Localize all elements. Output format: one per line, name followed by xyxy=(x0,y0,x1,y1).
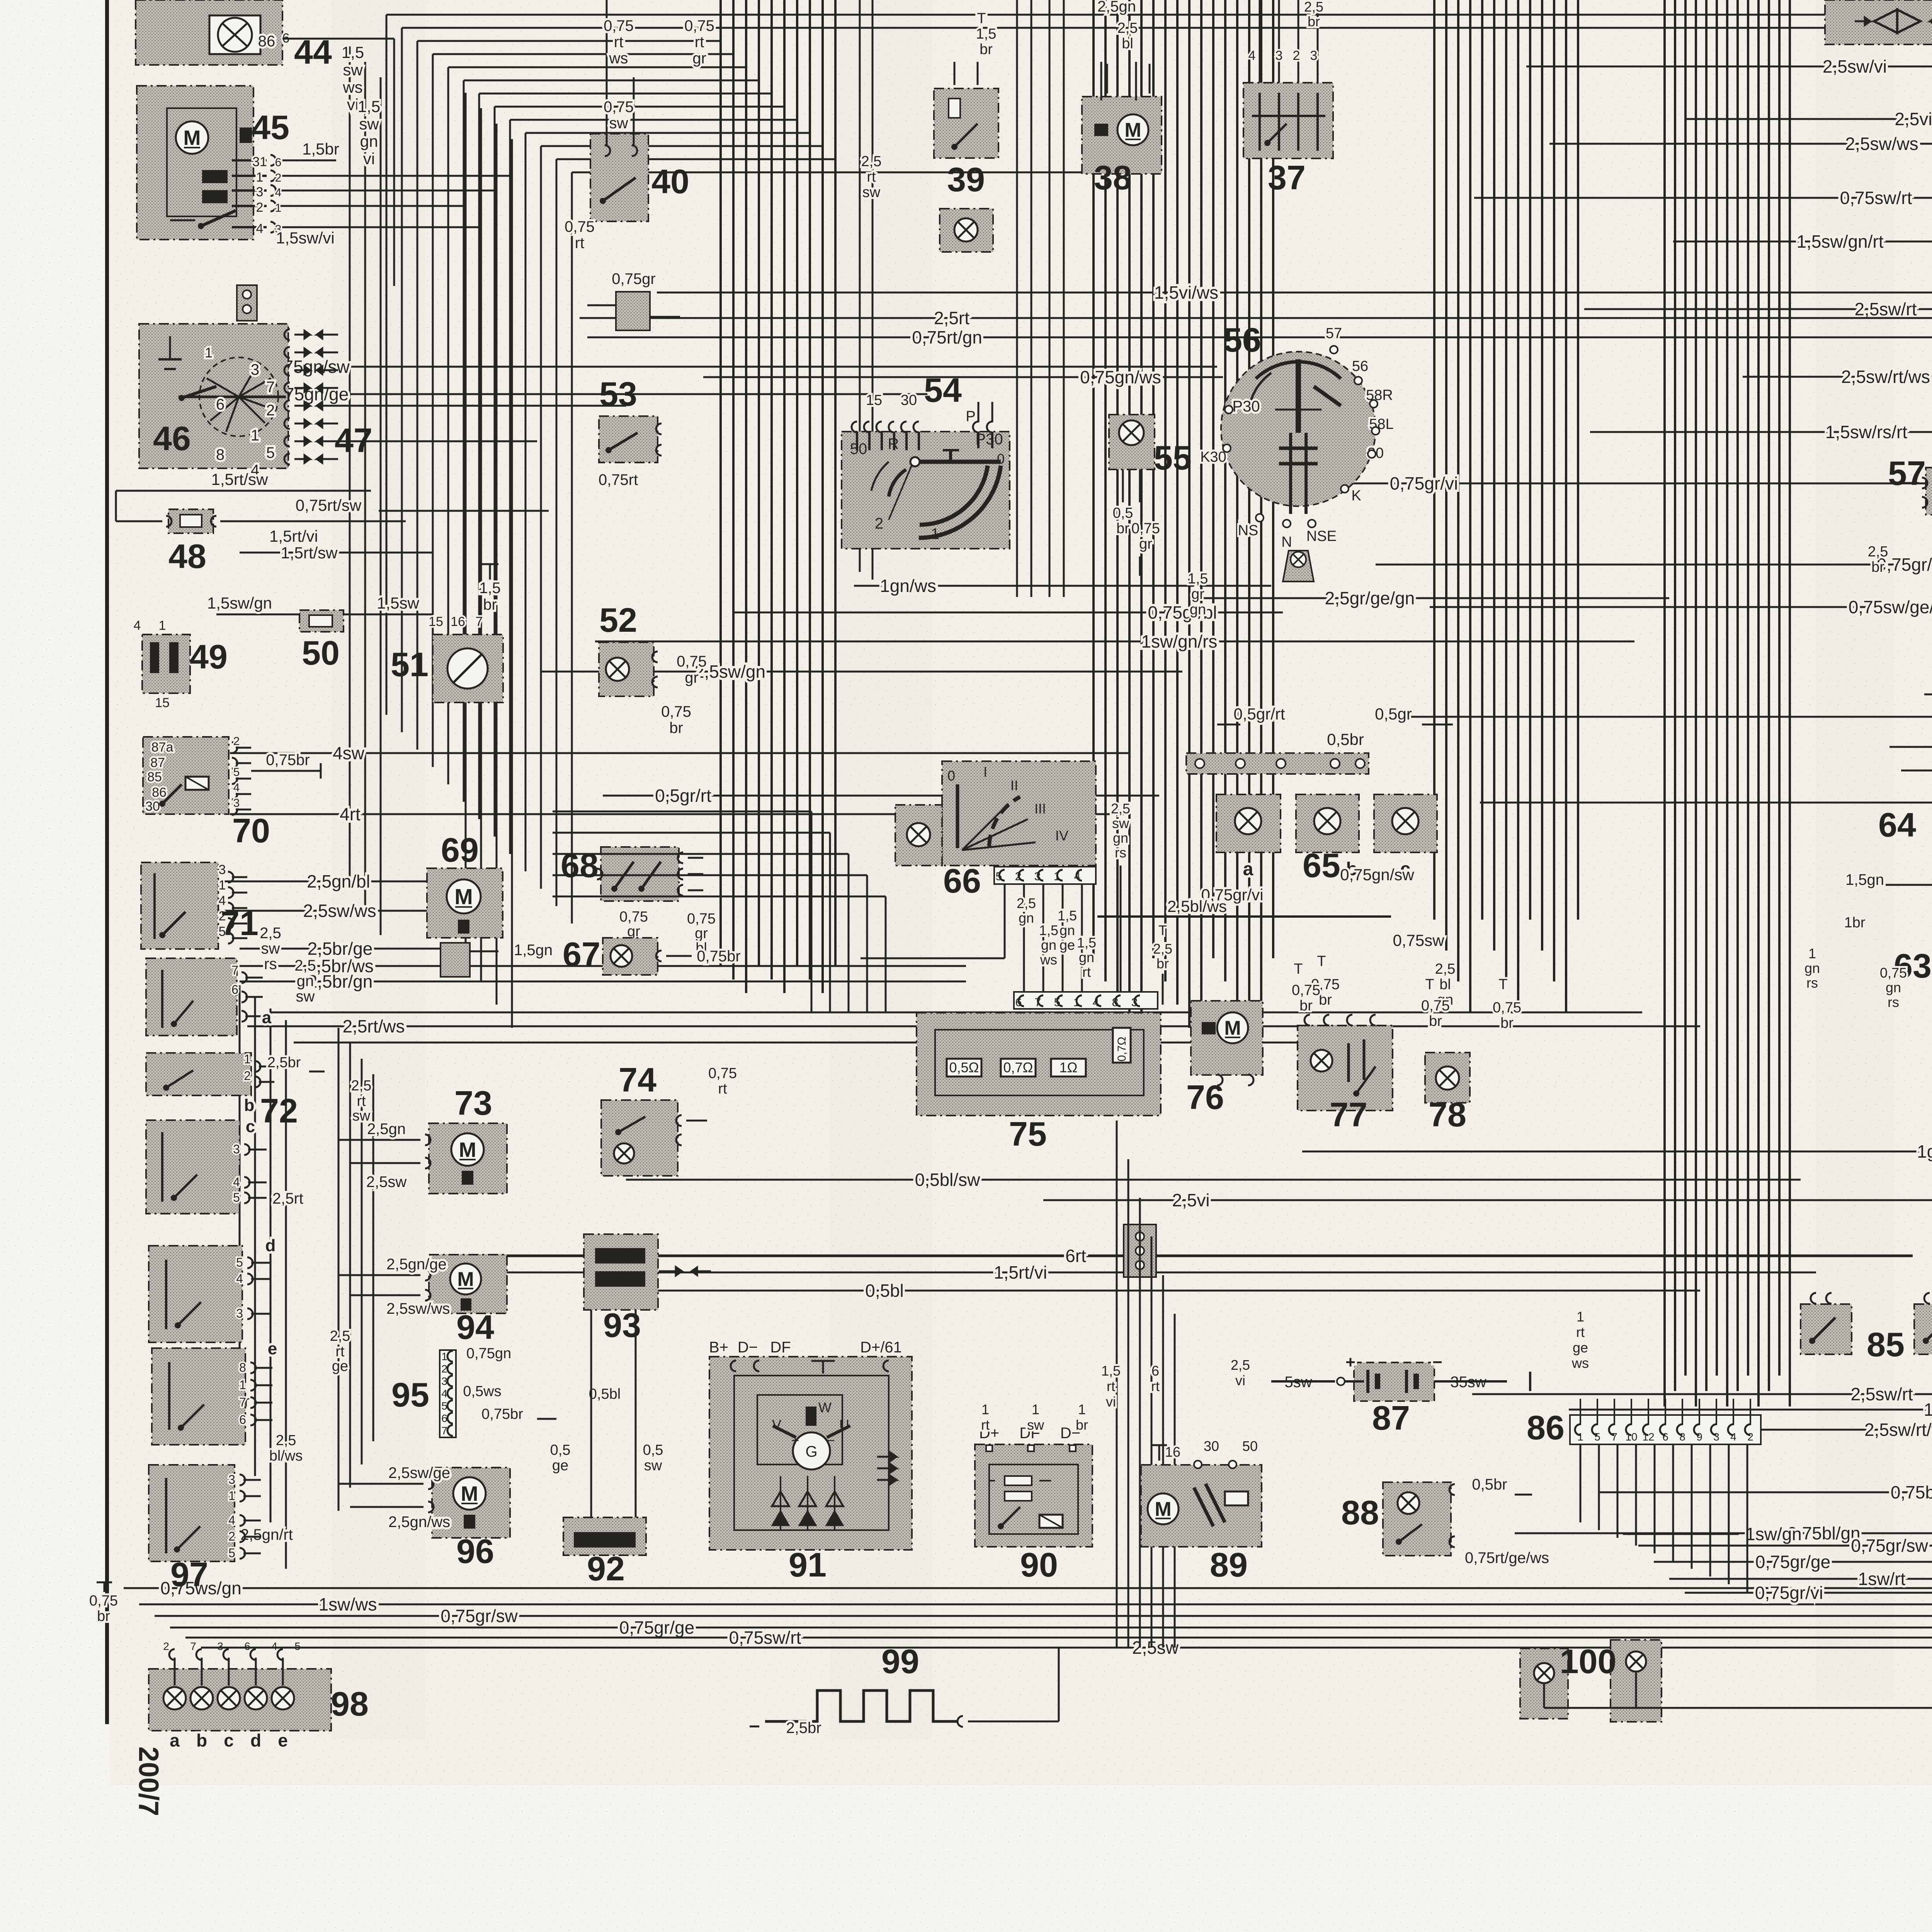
svg-text:1,5: 1,5 xyxy=(976,26,997,42)
svg-text:4: 4 xyxy=(134,618,141,633)
svg-text:gn: gn xyxy=(1041,937,1056,953)
svg-text:1,5: 1,5 xyxy=(1058,908,1077,923)
svg-text:0,75gr: 0,75gr xyxy=(612,270,655,287)
svg-text:15: 15 xyxy=(429,614,443,629)
svg-text:2,5sw/rt: 2,5sw/rt xyxy=(1850,1384,1913,1404)
svg-text:a: a xyxy=(170,1730,180,1750)
svg-text:3: 3 xyxy=(233,797,240,810)
svg-text:0,5: 0,5 xyxy=(643,1442,663,1458)
svg-text:br: br xyxy=(1500,1015,1514,1031)
svg-text:2: 2 xyxy=(228,1529,235,1543)
svg-text:gn: gn xyxy=(297,973,314,990)
svg-text:94: 94 xyxy=(456,1308,494,1346)
svg-text:0,75rt/gn: 0,75rt/gn xyxy=(912,327,982,347)
svg-text:vi: vi xyxy=(1235,1372,1245,1388)
svg-text:92: 92 xyxy=(587,1549,625,1588)
svg-text:7: 7 xyxy=(1611,1431,1617,1443)
svg-text:4: 4 xyxy=(271,1640,277,1652)
svg-text:2,5gn: 2,5gn xyxy=(1097,0,1136,15)
svg-text:a: a xyxy=(262,1008,272,1027)
svg-text:gn: gn xyxy=(360,132,378,150)
svg-text:3: 3 xyxy=(1131,996,1138,1009)
svg-text:e: e xyxy=(268,1339,277,1358)
svg-text:4: 4 xyxy=(233,781,240,794)
svg-text:vi: vi xyxy=(363,150,375,168)
svg-text:IV: IV xyxy=(1055,828,1068,844)
svg-text:rt: rt xyxy=(1082,964,1091,980)
svg-text:2: 2 xyxy=(1293,48,1300,63)
svg-text:7: 7 xyxy=(239,1395,246,1409)
svg-text:0,7Ω: 0,7Ω xyxy=(1003,1060,1033,1075)
svg-text:sw: sw xyxy=(644,1458,662,1474)
svg-text:4: 4 xyxy=(1248,48,1256,63)
svg-text:0,5: 0,5 xyxy=(550,1442,571,1458)
svg-text:0,75sw/rt: 0,75sw/rt xyxy=(729,1628,801,1648)
svg-text:100: 100 xyxy=(1560,1642,1617,1680)
svg-text:2: 2 xyxy=(256,200,264,215)
svg-text:rt: rt xyxy=(718,1081,727,1097)
svg-text:gr: gr xyxy=(685,669,699,686)
svg-text:40: 40 xyxy=(651,162,689,201)
svg-text:2,5: 2,5 xyxy=(1304,0,1323,15)
svg-text:30: 30 xyxy=(901,392,917,408)
svg-text:sw: sw xyxy=(352,1108,371,1124)
svg-text:2,5gn/bl: 2,5gn/bl xyxy=(307,871,370,891)
svg-text:gr: gr xyxy=(695,925,708,942)
svg-text:5: 5 xyxy=(294,1640,301,1652)
svg-text:31: 31 xyxy=(252,155,267,169)
svg-text:86: 86 xyxy=(258,33,276,50)
svg-text:rt: rt xyxy=(614,34,623,51)
svg-text:2: 2 xyxy=(244,1069,251,1083)
svg-text:rt: rt xyxy=(575,235,584,252)
svg-text:2,5: 2,5 xyxy=(260,925,281,942)
svg-text:rt: rt xyxy=(357,1093,366,1109)
svg-text:0,75: 0,75 xyxy=(565,218,595,235)
svg-text:br: br xyxy=(1308,14,1320,29)
svg-text:4sw: 4sw xyxy=(333,743,365,763)
svg-text:sw: sw xyxy=(1027,1417,1044,1433)
svg-text:74: 74 xyxy=(619,1061,656,1099)
svg-text:br: br xyxy=(1319,992,1332,1008)
svg-text:12: 12 xyxy=(1642,1431,1654,1443)
svg-text:85: 85 xyxy=(1867,1325,1905,1364)
svg-text:2: 2 xyxy=(1015,870,1022,883)
svg-text:57: 57 xyxy=(1888,454,1926,492)
svg-text:1: 1 xyxy=(228,1489,235,1503)
svg-text:0,75: 0,75 xyxy=(1493,1000,1521,1016)
svg-text:T: T xyxy=(977,10,986,27)
svg-text:0,75sw/ge/rt: 0,75sw/ge/rt xyxy=(1849,597,1932,617)
svg-text:bl: bl xyxy=(1439,976,1451,993)
svg-text:br: br xyxy=(483,596,497,613)
svg-text:7: 7 xyxy=(266,379,275,396)
svg-text:6: 6 xyxy=(441,1412,447,1424)
svg-text:gn: gn xyxy=(1113,830,1128,846)
svg-text:72: 72 xyxy=(260,1092,298,1130)
svg-text:0,5bl/sw: 0,5bl/sw xyxy=(915,1170,981,1190)
svg-text:d: d xyxy=(265,1236,276,1255)
svg-text:96: 96 xyxy=(456,1532,494,1570)
svg-text:1,5vi/ws: 1,5vi/ws xyxy=(1154,282,1218,303)
svg-text:br: br xyxy=(1116,520,1129,537)
svg-text:86: 86 xyxy=(152,785,167,800)
svg-text:52: 52 xyxy=(599,601,637,639)
svg-text:gr: gr xyxy=(1191,586,1204,602)
svg-text:bl/ws: bl/ws xyxy=(269,1448,303,1464)
svg-text:K30: K30 xyxy=(1200,449,1226,465)
svg-text:4rt: 4rt xyxy=(340,804,361,824)
svg-text:1,5sw/rs/rt: 1,5sw/rs/rt xyxy=(1825,422,1907,442)
svg-text:95: 95 xyxy=(391,1376,429,1414)
svg-text:4: 4 xyxy=(441,1388,447,1400)
svg-text:NSE: NSE xyxy=(1306,528,1337,544)
svg-text:1,5: 1,5 xyxy=(1077,935,1096,951)
svg-text:2: 2 xyxy=(875,515,883,532)
svg-text:1: 1 xyxy=(981,1401,989,1417)
svg-text:bl: bl xyxy=(1122,36,1133,52)
svg-text:5: 5 xyxy=(996,870,1002,883)
svg-text:T: T xyxy=(1425,976,1434,993)
svg-text:87: 87 xyxy=(1372,1399,1410,1437)
svg-text:2,5: 2,5 xyxy=(1111,801,1130,816)
svg-text:br: br xyxy=(1299,998,1313,1014)
svg-text:1: 1 xyxy=(239,1378,246,1392)
svg-text:rt: rt xyxy=(335,1344,345,1360)
svg-text:0,75gn/sw: 0,75gn/sw xyxy=(1340,866,1414,884)
svg-text:2: 2 xyxy=(275,172,282,184)
svg-text:rt: rt xyxy=(1576,1324,1585,1340)
svg-text:30: 30 xyxy=(1204,1438,1219,1454)
svg-text:ws: ws xyxy=(342,78,362,96)
svg-text:gn: gn xyxy=(1019,910,1034,926)
svg-text:T: T xyxy=(1158,922,1167,938)
svg-text:1,5rt/sw: 1,5rt/sw xyxy=(281,544,338,562)
svg-text:8: 8 xyxy=(1679,1431,1685,1443)
svg-text:sw: sw xyxy=(359,115,379,133)
svg-text:P30: P30 xyxy=(975,431,1003,448)
svg-text:rt: rt xyxy=(695,34,704,51)
svg-text:0,75gr/vi: 0,75gr/vi xyxy=(1755,1583,1823,1603)
svg-text:2,5sw: 2,5sw xyxy=(366,1173,407,1190)
svg-text:2,5gn: 2,5gn xyxy=(367,1121,406,1138)
svg-text:0,75bl/sw: 0,75bl/sw xyxy=(1891,1482,1932,1502)
svg-text:16: 16 xyxy=(451,614,465,629)
svg-text:5: 5 xyxy=(266,444,275,461)
svg-text:1sw/rt: 1sw/rt xyxy=(1858,1569,1906,1589)
svg-text:1sw/gn/rs: 1sw/gn/rs xyxy=(1141,631,1218,651)
svg-text:1: 1 xyxy=(159,618,166,633)
svg-text:rs: rs xyxy=(1115,845,1126,861)
svg-text:0,75gr/bl: 0,75gr/bl xyxy=(1148,602,1217,622)
svg-text:rt: rt xyxy=(981,1417,990,1433)
svg-text:6: 6 xyxy=(231,983,238,997)
svg-text:2,5: 2,5 xyxy=(294,957,316,974)
svg-text:98: 98 xyxy=(331,1685,369,1723)
svg-text:1,5: 1,5 xyxy=(479,580,501,597)
svg-text:0,75gr/ge: 0,75gr/ge xyxy=(619,1617,694,1638)
svg-text:2,5: 2,5 xyxy=(276,1432,296,1449)
svg-text:2,5sw/vi: 2,5sw/vi xyxy=(1823,56,1887,77)
svg-text:M: M xyxy=(459,1138,476,1162)
svg-text:49: 49 xyxy=(190,638,228,676)
svg-text:0,75: 0,75 xyxy=(604,99,634,116)
svg-text:76: 76 xyxy=(1186,1078,1224,1116)
svg-text:54: 54 xyxy=(924,371,962,409)
svg-text:gn: gn xyxy=(1804,960,1820,976)
svg-text:0,75: 0,75 xyxy=(661,703,691,720)
svg-text:3: 3 xyxy=(228,1473,235,1486)
svg-text:br: br xyxy=(97,1608,110,1624)
svg-text:1: 1 xyxy=(441,1350,447,1362)
svg-text:1: 1 xyxy=(1577,1309,1584,1325)
svg-text:M: M xyxy=(1155,1498,1171,1520)
svg-text:77: 77 xyxy=(1330,1095,1367,1134)
svg-text:2: 2 xyxy=(163,1640,169,1652)
svg-text:0,5gr: 0,5gr xyxy=(1375,705,1412,723)
svg-text:0,75rt: 0,75rt xyxy=(599,471,638,488)
svg-text:3: 3 xyxy=(256,185,264,199)
svg-text:2,5: 2,5 xyxy=(351,1078,372,1094)
svg-text:1: 1 xyxy=(1078,1401,1086,1417)
svg-text:ge: ge xyxy=(1060,937,1075,953)
svg-text:2,5sw/ws: 2,5sw/ws xyxy=(1845,134,1918,154)
svg-text:0,5bl: 0,5bl xyxy=(865,1281,904,1301)
svg-text:gn: gn xyxy=(1079,949,1094,965)
svg-text:55: 55 xyxy=(1154,439,1192,477)
svg-text:a: a xyxy=(1243,859,1253,879)
svg-text:0,75br: 0,75br xyxy=(266,752,310,769)
svg-text:1gn/rt: 1gn/rt xyxy=(1917,1141,1932,1162)
svg-text:T: T xyxy=(1317,953,1326,969)
svg-text:6: 6 xyxy=(1662,1431,1668,1443)
svg-text:0,75gr/ge: 0,75gr/ge xyxy=(1755,1552,1830,1572)
svg-text:W: W xyxy=(818,1400,832,1415)
svg-text:0,75: 0,75 xyxy=(604,17,634,34)
svg-text:0,75rt/sw: 0,75rt/sw xyxy=(296,496,362,514)
svg-text:50: 50 xyxy=(850,440,867,457)
svg-text:II: II xyxy=(1010,777,1018,793)
svg-text:0,75: 0,75 xyxy=(1292,982,1320,998)
svg-text:1gn/ws: 1gn/ws xyxy=(880,576,936,596)
svg-text:2,5sw/rt/ws: 2,5sw/rt/ws xyxy=(1864,1420,1932,1440)
svg-text:0,75: 0,75 xyxy=(1880,965,1907,981)
svg-text:1: 1 xyxy=(1073,996,1080,1009)
svg-text:sw: sw xyxy=(261,940,280,957)
svg-text:3: 3 xyxy=(1276,48,1283,63)
svg-text:N: N xyxy=(1281,534,1292,550)
svg-text:2: 2 xyxy=(266,402,275,419)
svg-text:0,75br: 0,75br xyxy=(481,1406,523,1422)
svg-text:M: M xyxy=(1224,1017,1241,1039)
svg-text:2,5sw/ge: 2,5sw/ge xyxy=(388,1464,450,1481)
svg-text:ws: ws xyxy=(609,50,628,67)
svg-text:45: 45 xyxy=(252,108,289,146)
svg-text:87: 87 xyxy=(150,755,165,770)
svg-text:15: 15 xyxy=(155,696,170,710)
svg-text:6: 6 xyxy=(239,1413,246,1427)
svg-text:53: 53 xyxy=(599,375,637,413)
svg-text:K: K xyxy=(1351,488,1361,504)
svg-text:2,5: 2,5 xyxy=(1017,895,1036,911)
svg-text:6: 6 xyxy=(244,1640,250,1652)
svg-text:1: 1 xyxy=(1054,870,1060,883)
svg-text:1: 1 xyxy=(1032,1401,1039,1417)
svg-text:rs: rs xyxy=(1888,994,1899,1010)
svg-text:0,5br: 0,5br xyxy=(1472,1476,1507,1493)
svg-text:3: 3 xyxy=(1034,870,1041,883)
svg-text:1: 1 xyxy=(205,345,213,361)
svg-text:16: 16 xyxy=(1165,1444,1180,1460)
svg-text:2,5sw/rt: 2,5sw/rt xyxy=(1854,299,1917,319)
svg-text:d: d xyxy=(250,1730,261,1750)
svg-text:3: 3 xyxy=(1310,48,1318,63)
svg-text:3: 3 xyxy=(217,1640,223,1652)
svg-text:gn: gn xyxy=(1886,980,1901,995)
svg-text:e: e xyxy=(278,1730,288,1750)
svg-text:0: 0 xyxy=(947,768,955,784)
svg-text:2,5br: 2,5br xyxy=(267,1054,301,1071)
svg-text:1: 1 xyxy=(1808,946,1816,961)
svg-text:br: br xyxy=(1156,956,1169,971)
svg-text:2,5: 2,5 xyxy=(1117,20,1138,36)
svg-text:78: 78 xyxy=(1429,1095,1466,1134)
svg-text:b: b xyxy=(196,1730,207,1750)
svg-text:6: 6 xyxy=(275,156,282,169)
svg-text:99: 99 xyxy=(881,1642,919,1680)
svg-text:68: 68 xyxy=(561,846,599,884)
svg-text:2,5gr/ge/gn: 2,5gr/ge/gn xyxy=(1325,588,1415,608)
svg-text:2,5sw/ws: 2,5sw/ws xyxy=(386,1300,450,1317)
svg-text:1,5rt/vi: 1,5rt/vi xyxy=(269,527,318,545)
svg-text:2,5: 2,5 xyxy=(330,1328,350,1344)
svg-text:56: 56 xyxy=(1352,358,1368,374)
svg-text:1br: 1br xyxy=(1844,915,1866,931)
svg-text:5: 5 xyxy=(233,1190,240,1204)
svg-text:0,75rt/ge/ws: 0,75rt/ge/ws xyxy=(1465,1549,1549,1566)
svg-text:70: 70 xyxy=(232,811,270,850)
svg-text:ge: ge xyxy=(552,1458,568,1474)
svg-text:br: br xyxy=(1076,1417,1088,1433)
svg-text:4: 4 xyxy=(275,186,282,199)
svg-text:5: 5 xyxy=(441,1400,447,1412)
svg-text:0,75sw: 0,75sw xyxy=(1393,931,1444,949)
svg-text:89: 89 xyxy=(1210,1546,1248,1584)
svg-text:−: − xyxy=(1432,1353,1442,1372)
svg-text:5: 5 xyxy=(236,1255,243,1269)
svg-text:vi: vi xyxy=(347,95,359,114)
svg-text:1sw/ws: 1sw/ws xyxy=(319,1594,377,1614)
svg-text:87a: 87a xyxy=(151,740,173,755)
svg-text:50: 50 xyxy=(302,634,340,672)
svg-text:37: 37 xyxy=(1268,158,1306,197)
svg-text:1,5gn: 1,5gn xyxy=(514,942,553,959)
svg-text:51: 51 xyxy=(391,645,429,684)
svg-text:15: 15 xyxy=(866,392,882,408)
svg-text:4: 4 xyxy=(256,221,264,236)
svg-text:6: 6 xyxy=(1015,996,1022,1009)
svg-text:III: III xyxy=(1034,801,1046,816)
svg-text:1,5: 1,5 xyxy=(1188,571,1208,587)
svg-text:br: br xyxy=(1429,1013,1442,1029)
svg-text:0,75: 0,75 xyxy=(1421,998,1450,1014)
svg-text:1: 1 xyxy=(275,202,282,214)
svg-text:D−: D− xyxy=(738,1339,758,1356)
svg-text:4: 4 xyxy=(236,1272,243,1286)
svg-text:rs: rs xyxy=(1806,975,1818,991)
svg-text:200/7: 200/7 xyxy=(133,1747,164,1816)
svg-text:0,75gn: 0,75gn xyxy=(466,1345,511,1362)
svg-text:39: 39 xyxy=(947,160,985,199)
svg-text:4: 4 xyxy=(1093,996,1099,1009)
svg-text:0,5gr/rt: 0,5gr/rt xyxy=(655,786,711,806)
svg-text:3: 3 xyxy=(441,1375,447,1387)
svg-text:1: 1 xyxy=(219,878,226,893)
svg-text:sw: sw xyxy=(343,61,363,79)
svg-text:4: 4 xyxy=(233,1175,240,1189)
svg-text:2,5gn/ge: 2,5gn/ge xyxy=(386,1256,447,1273)
svg-text:sw: sw xyxy=(862,184,881,201)
svg-text:rt: rt xyxy=(867,169,876,185)
svg-text:46: 46 xyxy=(153,419,191,457)
svg-text:10: 10 xyxy=(1625,1431,1637,1443)
svg-text:T: T xyxy=(1498,976,1507,993)
svg-text:86: 86 xyxy=(1527,1408,1565,1447)
svg-text:NS: NS xyxy=(1238,522,1259,539)
svg-text:3: 3 xyxy=(1713,1431,1719,1443)
svg-text:5: 5 xyxy=(233,766,240,779)
svg-text:G: G xyxy=(805,1443,817,1460)
svg-text:DF: DF xyxy=(770,1339,791,1356)
svg-text:B+: B+ xyxy=(709,1339,728,1356)
svg-text:48: 48 xyxy=(168,537,206,575)
svg-text:7: 7 xyxy=(476,614,483,629)
svg-text:1,5: 1,5 xyxy=(342,43,364,61)
svg-text:0,75gr/vi: 0,75gr/vi xyxy=(1390,473,1458,493)
svg-text:M: M xyxy=(184,126,201,150)
svg-text:3: 3 xyxy=(233,1142,240,1156)
svg-text:0,75gr/sw: 0,75gr/sw xyxy=(1851,1536,1928,1556)
svg-text:56: 56 xyxy=(1223,321,1261,359)
svg-text:ws: ws xyxy=(1571,1355,1589,1371)
svg-text:1: 1 xyxy=(931,526,939,543)
svg-text:8: 8 xyxy=(216,446,224,463)
svg-text:rt: rt xyxy=(1151,1378,1160,1394)
svg-text:2,5bl/ws: 2,5bl/ws xyxy=(1167,897,1227,915)
svg-text:0,75gr/sw: 0,75gr/sw xyxy=(440,1606,518,1626)
svg-text:3: 3 xyxy=(251,361,259,378)
svg-text:2,5vi: 2,5vi xyxy=(1895,109,1932,129)
svg-text:7: 7 xyxy=(1035,996,1041,1009)
svg-text:2,5sw/rt/ws: 2,5sw/rt/ws xyxy=(1841,367,1930,387)
svg-text:gr: gr xyxy=(1139,536,1152,552)
svg-text:1,5: 1,5 xyxy=(1039,922,1058,938)
svg-text:1: 1 xyxy=(244,1052,251,1066)
svg-text:7: 7 xyxy=(231,963,238,977)
svg-text:2,5rt: 2,5rt xyxy=(934,308,969,328)
svg-text:3: 3 xyxy=(236,1306,243,1320)
svg-text:sw: sw xyxy=(1112,815,1129,831)
svg-text:2,5: 2,5 xyxy=(1868,544,1888,560)
svg-text:M: M xyxy=(461,1482,478,1505)
svg-text:90: 90 xyxy=(1020,1546,1058,1584)
svg-text:1,5sw: 1,5sw xyxy=(377,594,419,612)
svg-text:vi: vi xyxy=(1106,1394,1116,1410)
svg-text:0,5: 0,5 xyxy=(1113,505,1133,521)
svg-text:0,75: 0,75 xyxy=(1131,520,1160,537)
svg-text:71: 71 xyxy=(221,904,259,942)
svg-text:0,75: 0,75 xyxy=(677,653,707,670)
